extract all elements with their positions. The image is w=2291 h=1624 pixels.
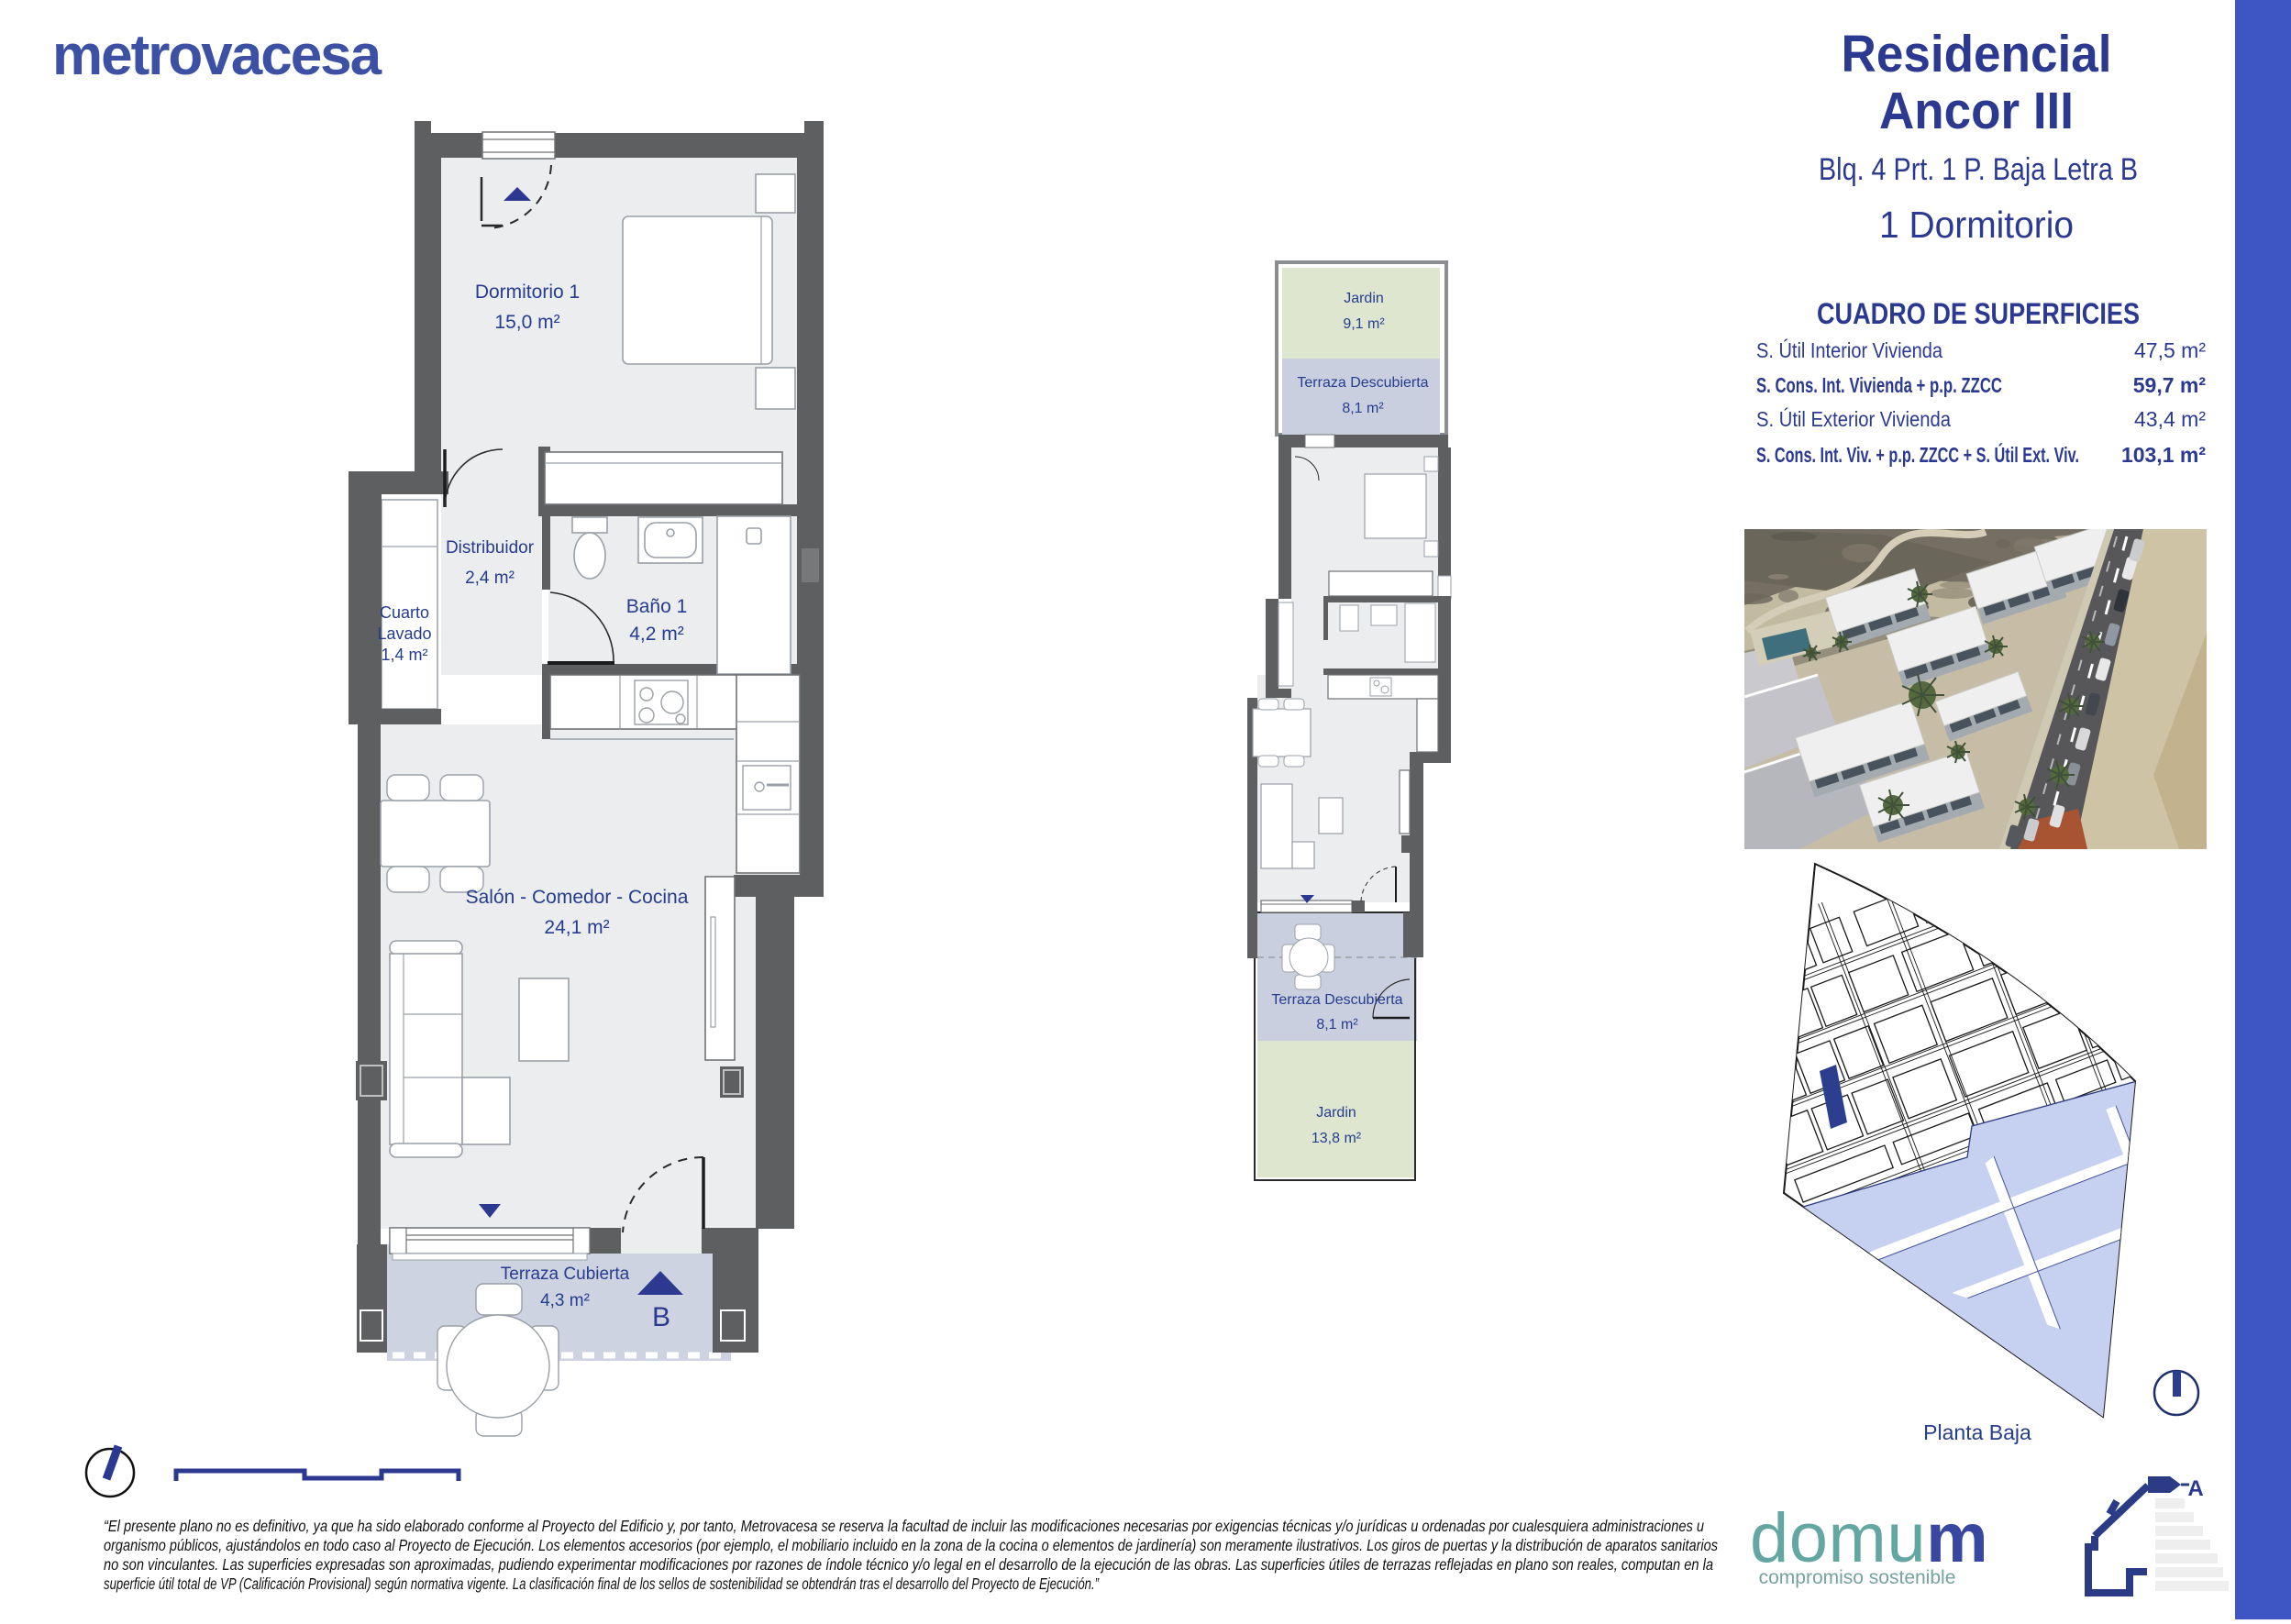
svg-text:S. Cons. Int. Vivienda + p.p.: S. Cons. Int. Vivienda + p.p. ZZCC	[1756, 373, 2002, 397]
svg-text:4,2 m²: 4,2 m²	[629, 624, 684, 645]
svg-text:103,1 m²: 103,1 m²	[2121, 443, 2206, 467]
svg-text:43,4 m²: 43,4 m²	[2134, 407, 2206, 431]
svg-text:9,1 m²: 9,1 m²	[1343, 316, 1385, 332]
svg-text:4,3 m²: 4,3 m²	[540, 1291, 590, 1310]
svg-text:Planta Baja: Planta Baja	[1923, 1420, 2031, 1444]
svg-text:“El presente plano no es defin: “El presente plano no es definitivo, ya …	[104, 1517, 1704, 1535]
svg-text:Residencial: Residencial	[1842, 25, 2112, 83]
svg-text:1,4 m²: 1,4 m²	[381, 646, 427, 664]
svg-text:Terraza Descubierta: Terraza Descubierta	[1271, 992, 1402, 1008]
svg-text:S. Cons. Int. Viv. + p.p. ZZCC: S. Cons. Int. Viv. + p.p. ZZCC + S. Útil…	[1756, 442, 2079, 467]
svg-text:Baño 1: Baño 1	[626, 596, 688, 617]
svg-text:Lavado: Lavado	[377, 624, 431, 643]
svg-text:organismo públicos, ajustándol: organismo públicos, ajustándolos en todo…	[104, 1536, 1718, 1554]
svg-text:Salón - Comedor - Cocina: Salón - Comedor - Cocina	[466, 887, 689, 908]
svg-text:Cuarto: Cuarto	[380, 603, 429, 622]
svg-text:Distribuidor: Distribuidor	[446, 538, 535, 558]
svg-text:S. Útil Exterior Vivienda: S. Útil Exterior Vivienda	[1756, 407, 1951, 431]
svg-text:15,0 m²: 15,0 m²	[494, 312, 559, 333]
svg-text:13,8 m²: 13,8 m²	[1312, 1131, 1362, 1146]
svg-text:47,5 m²: 47,5 m²	[2134, 338, 2206, 362]
svg-text:Jardin: Jardin	[1344, 291, 1384, 306]
svg-text:S. Útil Interior Vivienda: S. Útil Interior Vivienda	[1756, 338, 1942, 362]
svg-text:compromiso sostenible: compromiso sostenible	[1759, 1567, 1956, 1588]
svg-text:Blq. 4 Prt. 1 P. Baja Letra B: Blq. 4 Prt. 1 P. Baja Letra B	[1819, 152, 2138, 187]
svg-text:metrovacesa: metrovacesa	[52, 24, 382, 87]
svg-text:domum: domum	[1750, 1499, 1988, 1577]
svg-text:A: A	[2187, 1476, 2203, 1501]
svg-text:59,7 m²: 59,7 m²	[2133, 373, 2207, 397]
svg-text:superficie útil total de VP (C: superficie útil total de VP (Calificació…	[104, 1574, 1100, 1593]
svg-text:24,1 m²: 24,1 m²	[544, 917, 609, 938]
svg-text:Terraza Descubierta: Terraza Descubierta	[1297, 375, 1428, 391]
svg-text:no son vinculantes. Las superf: no son vinculantes. Las superficies expr…	[104, 1555, 1713, 1574]
svg-text:Terraza Cubierta: Terraza Cubierta	[501, 1265, 630, 1284]
svg-text:Dormitorio 1: Dormitorio 1	[475, 282, 580, 303]
svg-text:CUADRO DE SUPERFICIES: CUADRO DE SUPERFICIES	[1817, 297, 2140, 330]
svg-text:2,4 m²: 2,4 m²	[465, 569, 515, 588]
svg-text:8,1 m²: 8,1 m²	[1316, 1017, 1358, 1033]
svg-text:Ancor III: Ancor III	[1879, 82, 2074, 140]
svg-text:Jardin: Jardin	[1316, 1105, 1356, 1121]
svg-text:8,1 m²: 8,1 m²	[1342, 401, 1384, 416]
svg-text:1 Dormitorio: 1 Dormitorio	[1879, 204, 2074, 246]
svg-text:B: B	[652, 1302, 670, 1332]
